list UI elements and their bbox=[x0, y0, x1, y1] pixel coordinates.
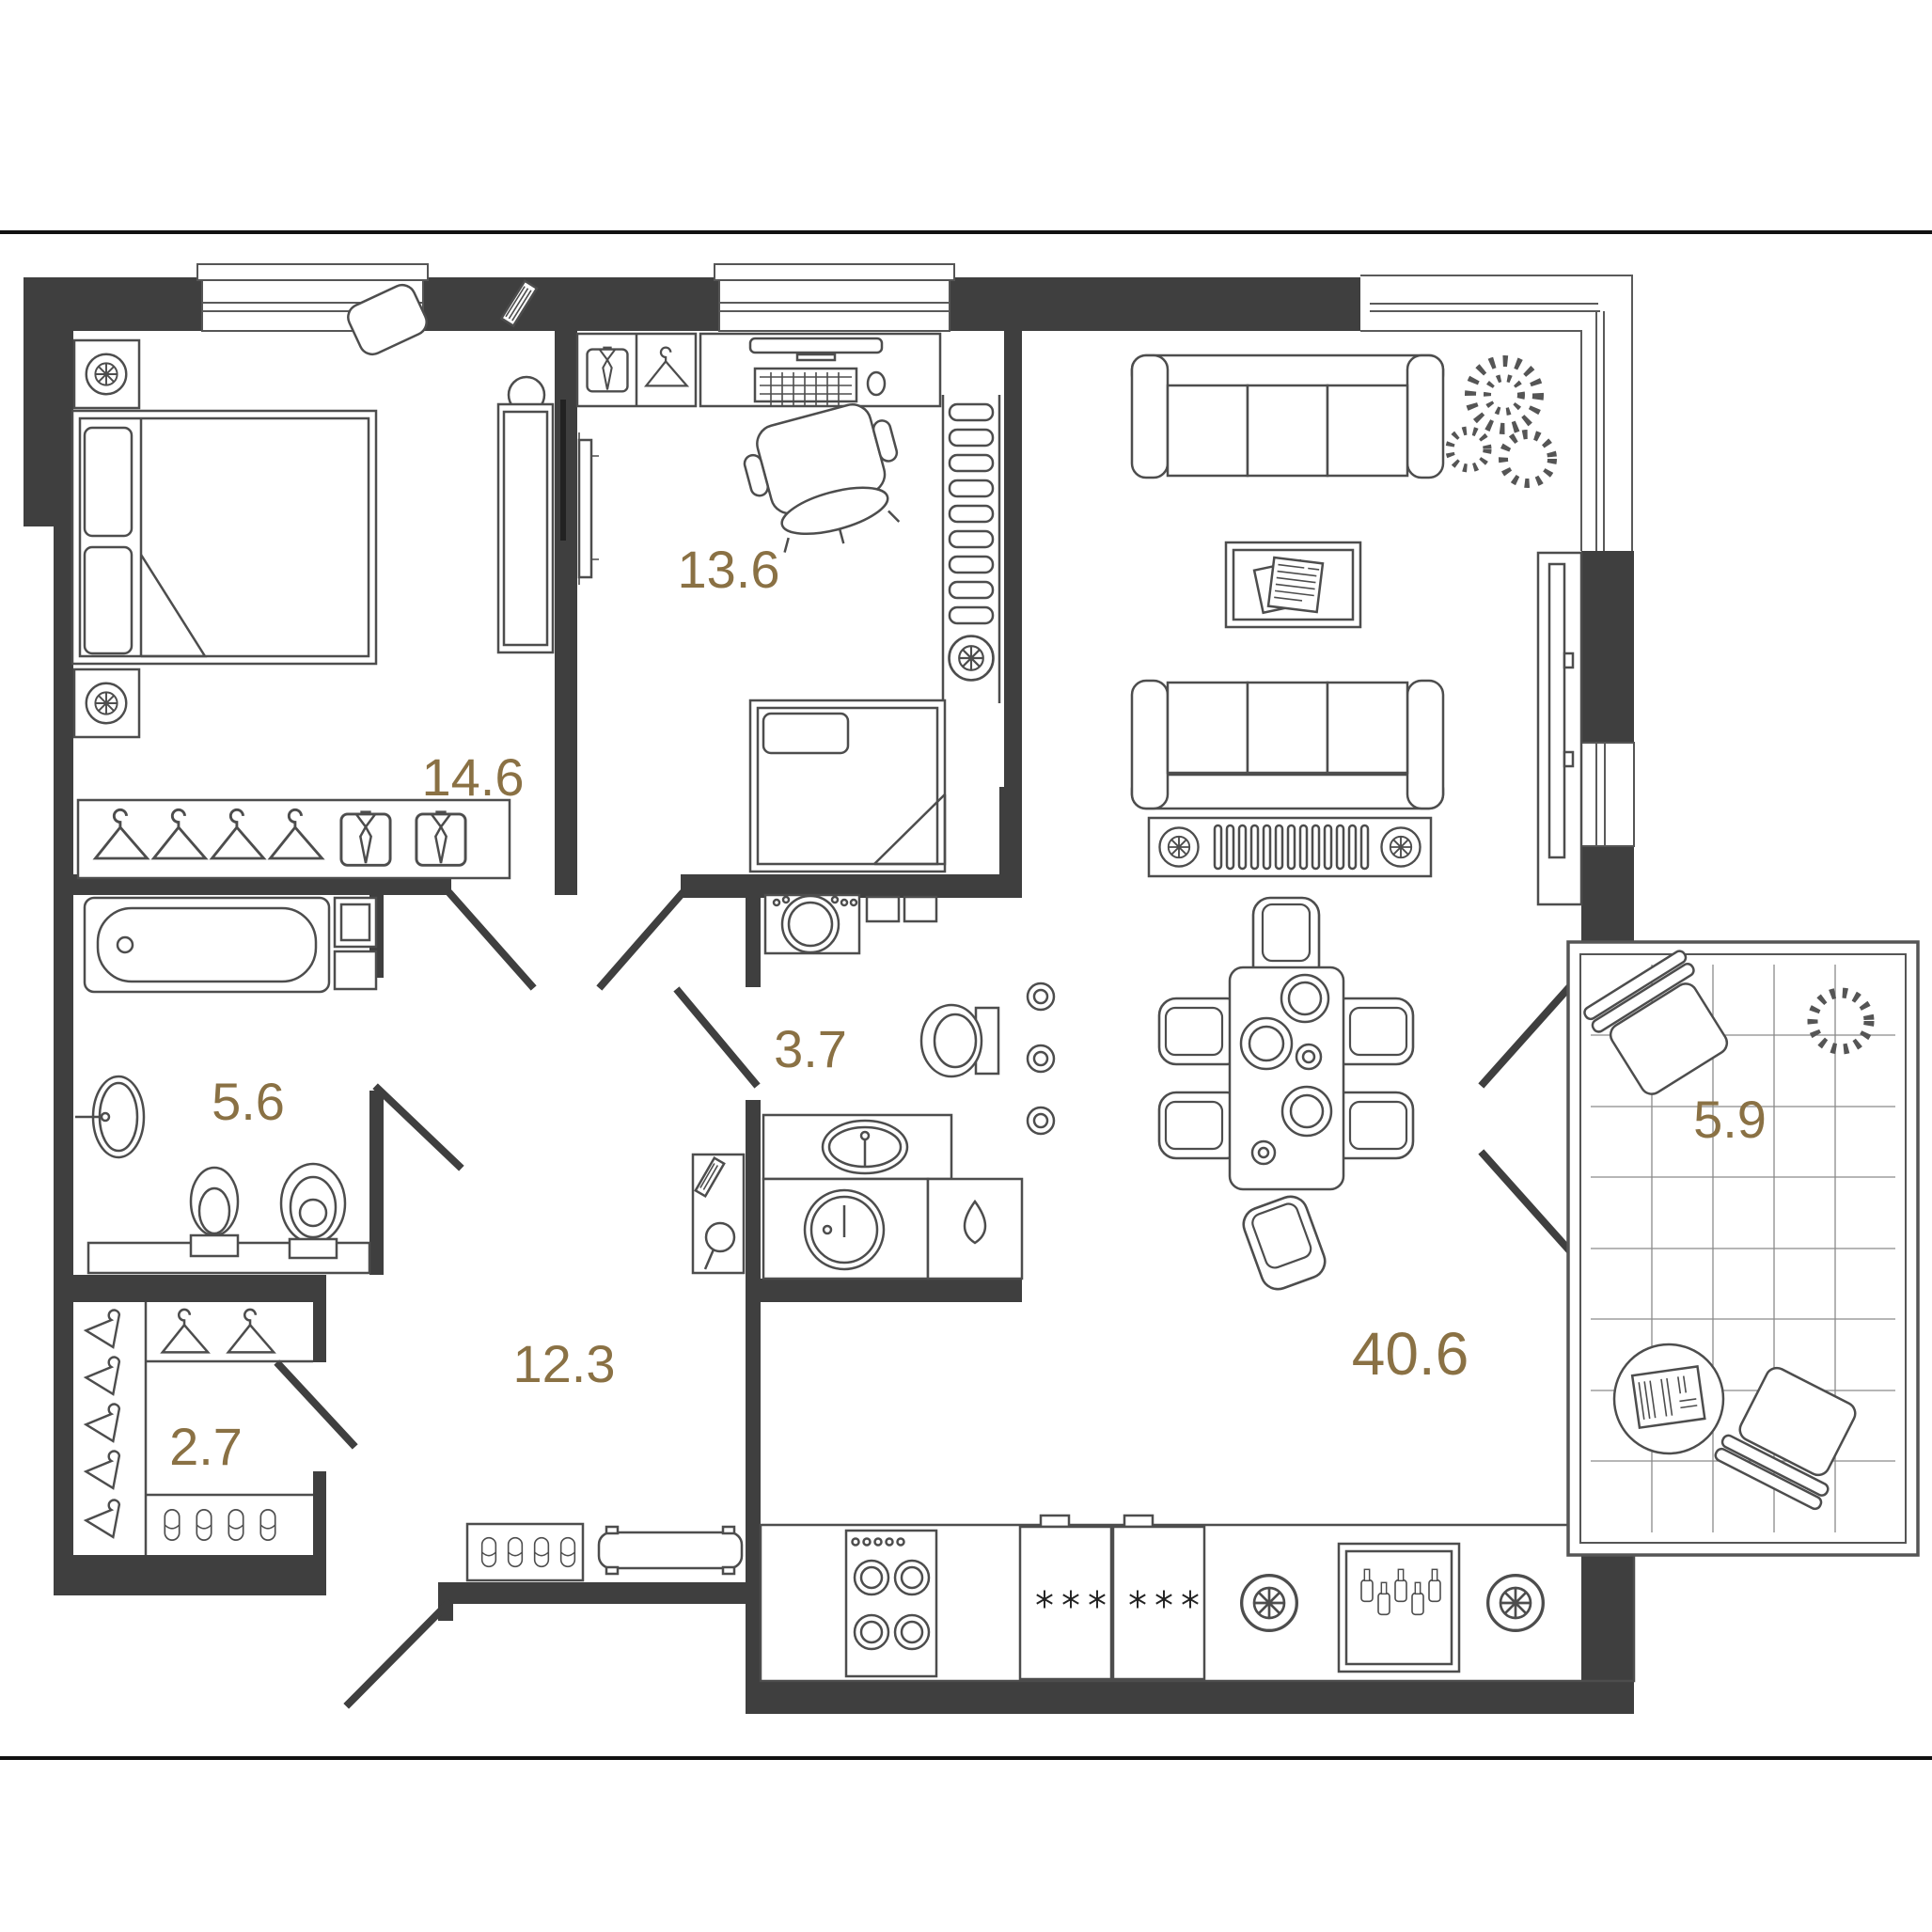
monitor-icon bbox=[750, 338, 882, 353]
bedroom-wardrobe-icon bbox=[78, 800, 510, 878]
bench-icon bbox=[599, 1527, 742, 1574]
room-label-hallway: 12.3 bbox=[513, 1334, 616, 1393]
wc-round-sink bbox=[763, 1179, 928, 1279]
pillow-icon bbox=[85, 547, 132, 653]
mouse-icon bbox=[868, 372, 885, 395]
balcony-table-icon bbox=[1614, 1344, 1723, 1453]
fridge-icon bbox=[1020, 1516, 1204, 1679]
fan-icon bbox=[1159, 827, 1198, 866]
tv-console-icon bbox=[1538, 553, 1581, 904]
room-label-child-room: 13.6 bbox=[678, 540, 780, 599]
lamp-icon bbox=[86, 683, 127, 724]
sofa-icon bbox=[1132, 681, 1443, 809]
hall-vanity bbox=[693, 1154, 744, 1273]
fan-icon bbox=[1488, 1576, 1544, 1631]
room-label-bathroom: 5.6 bbox=[212, 1072, 285, 1131]
room-label-closet: 2.7 bbox=[169, 1417, 243, 1476]
child-room-window bbox=[715, 264, 954, 331]
double-bed-icon bbox=[72, 411, 376, 664]
room-label-balcony: 5.9 bbox=[1693, 1090, 1767, 1149]
bathtub-icon bbox=[85, 898, 329, 992]
coffee-table-icon bbox=[1226, 542, 1360, 627]
room-label-bedroom: 14.6 bbox=[422, 747, 525, 807]
dresser bbox=[498, 404, 553, 652]
shelf-box bbox=[904, 897, 936, 921]
bidet-icon bbox=[281, 1164, 345, 1258]
fan-icon bbox=[950, 636, 994, 681]
wc-sink-counter bbox=[763, 1115, 951, 1179]
pillow-icon bbox=[85, 428, 132, 536]
room-label-kitchen-living: 40.6 bbox=[1352, 1320, 1469, 1388]
living-room-side-window bbox=[1581, 743, 1634, 846]
water-heater-icon bbox=[928, 1179, 1022, 1279]
shoe-rack-icon bbox=[467, 1524, 583, 1580]
console-radiator-icon bbox=[1149, 818, 1431, 876]
washing-machine-icon bbox=[765, 895, 859, 953]
lamp-icon bbox=[86, 354, 127, 395]
closet-icon bbox=[577, 334, 696, 406]
desk-icon bbox=[700, 334, 940, 406]
floor-plan-page: 14.6 13.6 5.6 3.7 2.7 12.3 40.6 5.9 bbox=[0, 0, 1932, 1932]
sofa-icon bbox=[1132, 355, 1443, 478]
wine-rack-icon bbox=[1339, 1544, 1459, 1672]
fan-icon bbox=[1242, 1576, 1297, 1631]
balcony bbox=[1568, 942, 1918, 1555]
fan-icon bbox=[1381, 827, 1420, 866]
wc-toilet-icon bbox=[921, 1005, 998, 1076]
shelf-box bbox=[867, 897, 899, 921]
stove-icon bbox=[846, 1531, 936, 1676]
shaft-box-icon bbox=[335, 898, 376, 989]
single-bed-icon bbox=[750, 700, 945, 872]
room-label-wc: 3.7 bbox=[774, 1019, 847, 1078]
pillow-icon bbox=[763, 714, 848, 753]
toilet-icon bbox=[191, 1168, 238, 1256]
floor-plan: 14.6 13.6 5.6 3.7 2.7 12.3 40.6 5.9 bbox=[0, 0, 1932, 1932]
